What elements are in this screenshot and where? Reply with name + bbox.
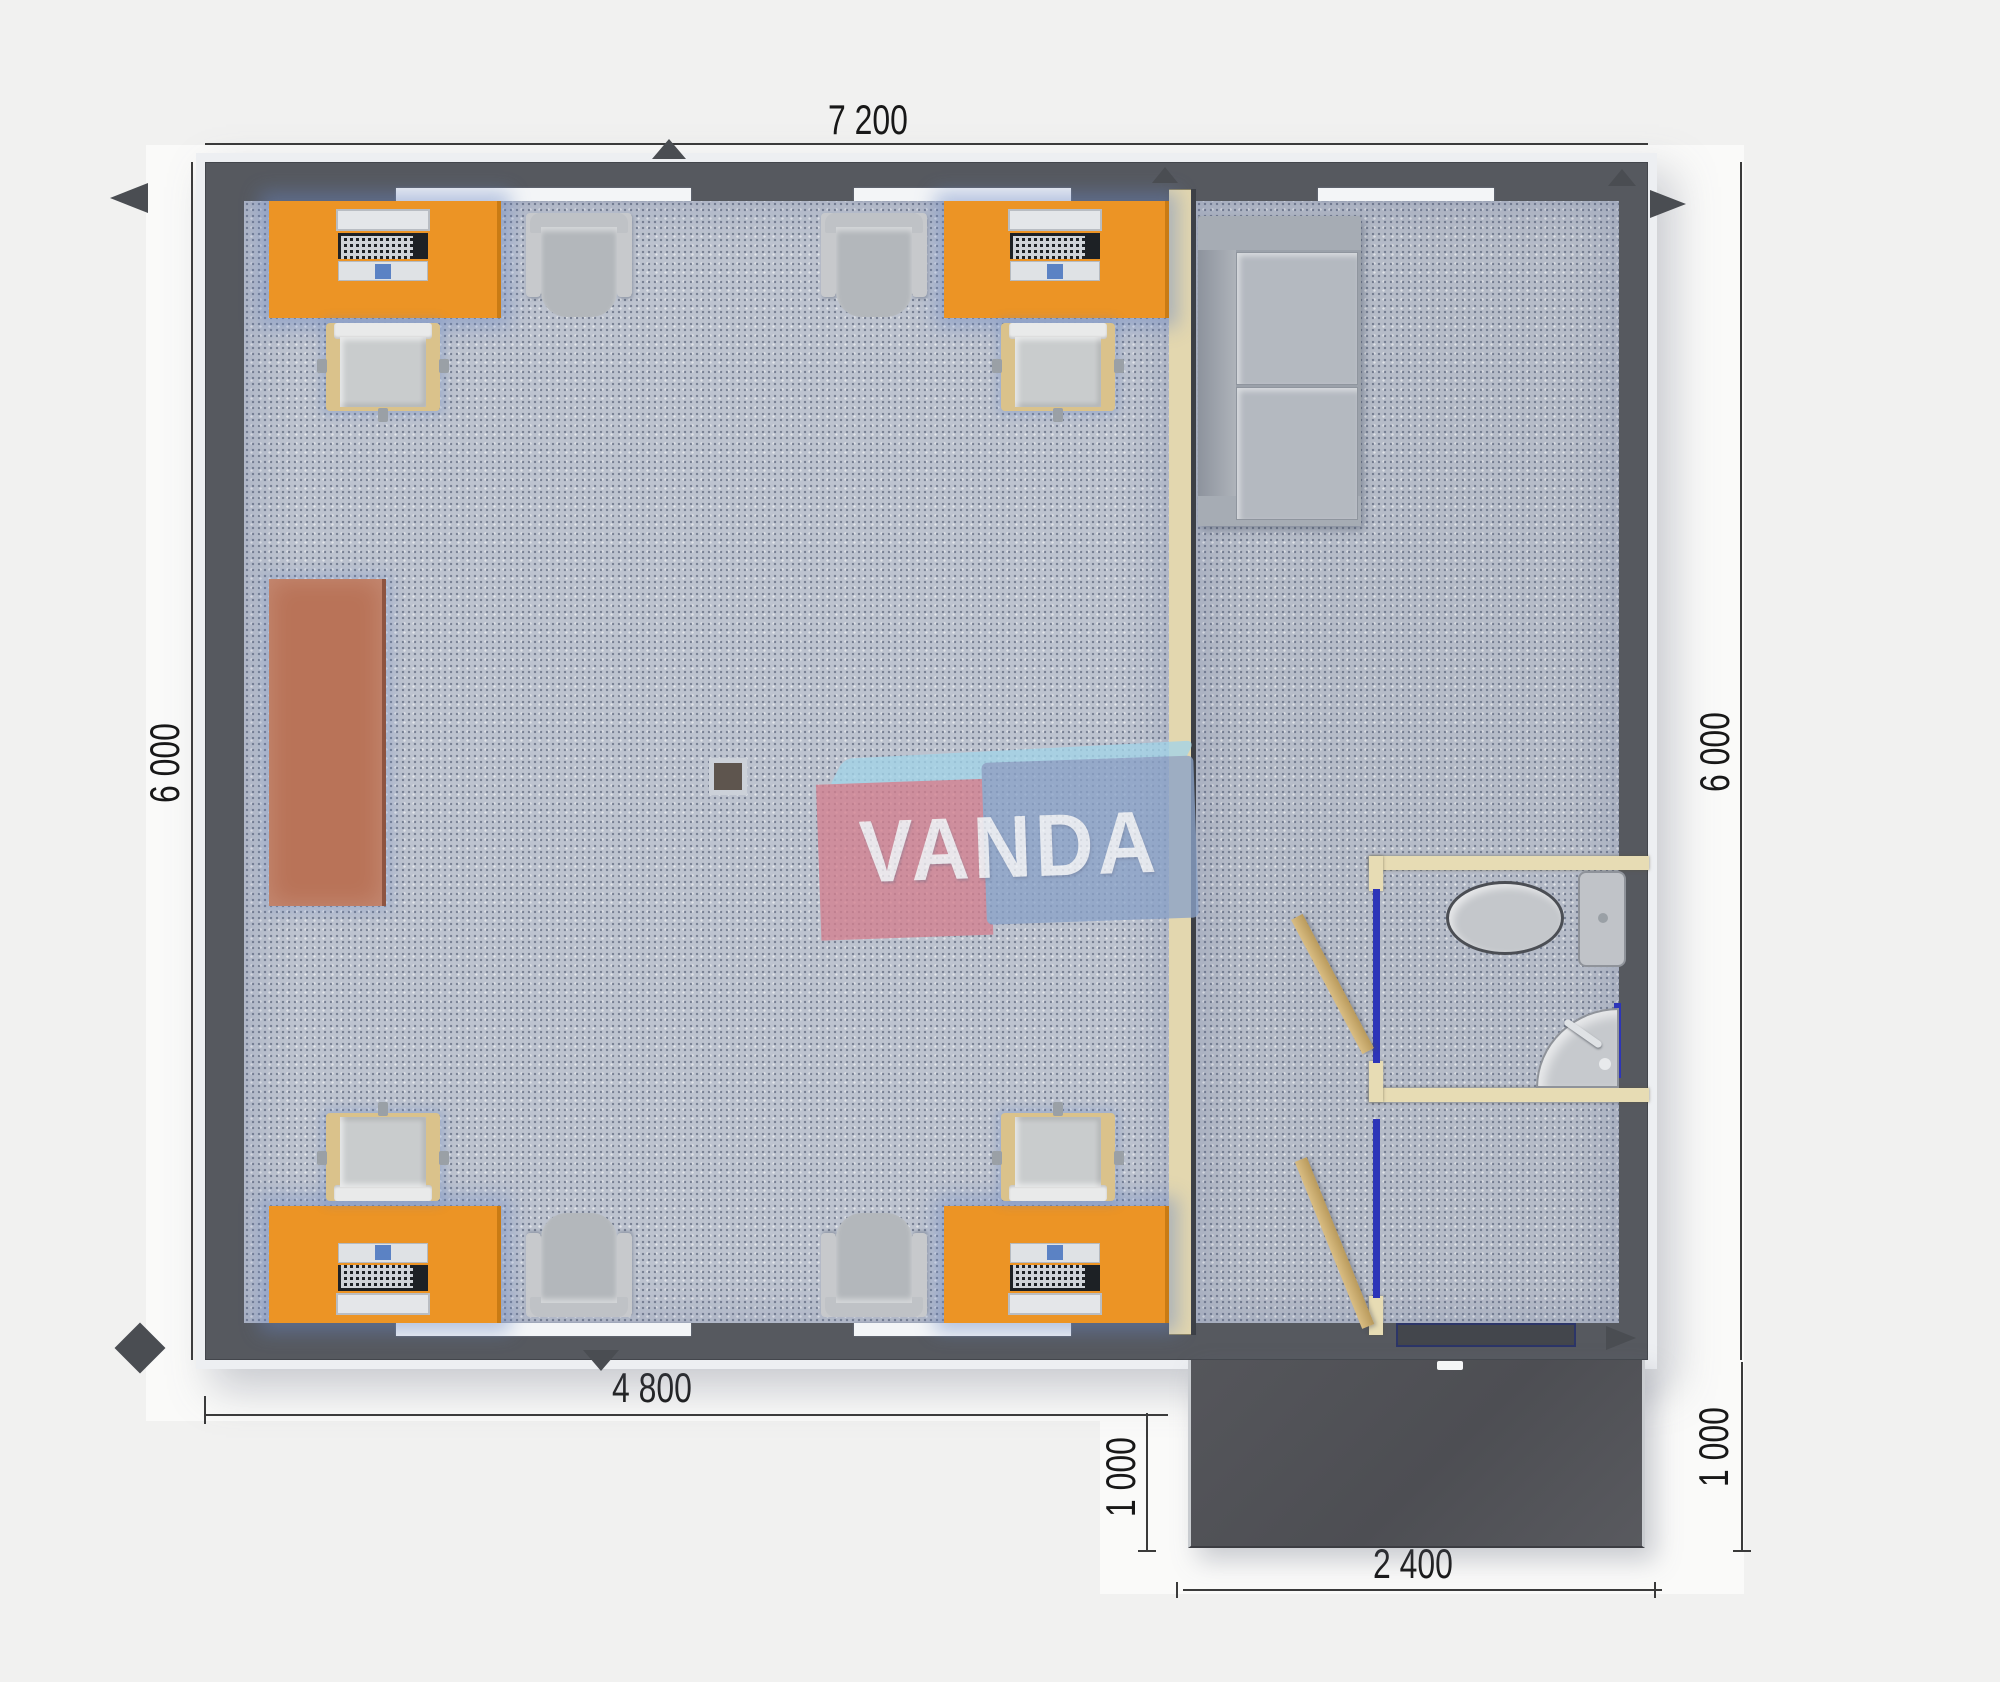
dimension-tick <box>1138 1550 1156 1552</box>
caster <box>439 1151 449 1165</box>
sofa <box>1198 216 1361 526</box>
ridge-marker-top-icon <box>652 139 686 159</box>
caster <box>378 1102 388 1116</box>
caster <box>317 359 327 373</box>
keyboard-icon <box>1010 233 1100 259</box>
dimension-label-left: 6 000 <box>141 723 189 803</box>
ridge-marker-top-icon <box>1152 167 1178 183</box>
computer-icon <box>336 209 430 281</box>
keyboard-icon <box>338 233 428 259</box>
storage-cabinet <box>269 579 386 906</box>
computer-icon <box>1008 209 1102 281</box>
tray <box>1010 1243 1100 1263</box>
toilet-flush-button <box>1598 913 1608 923</box>
floor-plan-scene: 7 200 6 000 6 000 4 800 1 000 1 000 2 40… <box>0 0 2000 1682</box>
computer-icon <box>1008 1243 1102 1315</box>
desk-chair <box>1001 323 1115 411</box>
key <box>1047 264 1063 279</box>
sofa-cushion <box>1236 252 1358 385</box>
office-desk <box>944 201 1169 318</box>
caster <box>1114 1151 1124 1165</box>
door-frame-blue <box>1373 889 1380 1063</box>
tray <box>1010 261 1100 281</box>
desk-chair <box>326 1113 440 1201</box>
floor-column <box>709 758 747 795</box>
faucet-knob <box>1599 1058 1611 1070</box>
dimension-line-right <box>1740 162 1742 1360</box>
visitor-armchair <box>821 213 927 321</box>
chair-seat <box>1015 337 1101 407</box>
entrance-porch <box>1188 1360 1645 1548</box>
dimension-line-porch-right <box>1741 1362 1743 1552</box>
dimension-label-right: 6 000 <box>1691 712 1739 792</box>
dimension-label-porch-depth-left: 1 000 <box>1097 1437 1145 1517</box>
window-top-1 <box>396 188 691 201</box>
visitor-armchair <box>526 213 632 321</box>
ridge-marker-right-icon <box>1650 190 1686 218</box>
chair-back <box>1009 1185 1107 1201</box>
bathroom-wall-south <box>1369 1088 1649 1102</box>
dimension-line-bottom-office <box>205 1414 1168 1416</box>
window-bottom-1 <box>396 1323 691 1336</box>
visitor-armchair <box>526 1209 632 1317</box>
chair-seat <box>1015 1117 1101 1187</box>
visitor-armchair <box>821 1209 927 1317</box>
ridge-marker-left-icon <box>110 183 148 213</box>
computer-icon <box>336 1243 430 1315</box>
office-desk <box>944 1206 1169 1323</box>
door-handle <box>1437 1361 1463 1370</box>
sofa-backrest <box>1198 216 1236 526</box>
tray <box>338 1243 428 1263</box>
sofa-armrest <box>1198 216 1361 250</box>
chair-seat <box>340 337 426 407</box>
door-frame-blue <box>1373 1119 1380 1298</box>
window-bottom-2 <box>854 1323 1071 1336</box>
dimension-line-top <box>205 143 1648 145</box>
caster <box>317 1151 327 1165</box>
caster <box>1114 359 1124 373</box>
keyboard-icon <box>338 1265 428 1291</box>
dimension-line-porch-bottom <box>1183 1589 1662 1591</box>
caster <box>992 359 1002 373</box>
corner-sink <box>1536 1008 1619 1088</box>
desk-chair <box>1001 1113 1115 1201</box>
dimension-line-porch-left <box>1146 1413 1148 1552</box>
dimension-label-top: 7 200 <box>828 96 908 144</box>
caster <box>378 408 388 422</box>
ridge-marker-bottom-icon <box>583 1350 619 1371</box>
chair-back <box>334 1185 432 1201</box>
keyboard-icon <box>1010 1265 1100 1291</box>
caster <box>992 1151 1002 1165</box>
caster <box>439 359 449 373</box>
monitor-icon <box>336 209 430 231</box>
bathroom-wall-west <box>1369 1061 1383 1102</box>
armchair-cushion <box>541 1213 617 1303</box>
key <box>375 264 391 279</box>
watermark-logo: VANDA <box>815 735 1204 942</box>
office-desk <box>269 1206 501 1323</box>
ridge-marker-top-icon <box>1608 169 1636 186</box>
key <box>1047 1245 1063 1260</box>
toilet-bowl <box>1446 881 1564 955</box>
window-top-3 <box>1318 188 1494 201</box>
monitor-icon <box>1008 209 1102 231</box>
key <box>375 1245 391 1260</box>
bathroom-wall-north <box>1369 856 1649 870</box>
monitor-icon <box>1008 1293 1102 1315</box>
sink-basin <box>1536 1008 1619 1088</box>
dimension-tick <box>1654 1582 1656 1598</box>
dimension-label-office-width: 4 800 <box>612 1364 692 1412</box>
toilet <box>1446 871 1626 967</box>
entrance-door <box>1396 1323 1576 1347</box>
bathroom-wall-west <box>1369 856 1383 891</box>
ridge-marker-right-icon <box>1606 1326 1636 1350</box>
armchair-cushion <box>836 1213 912 1303</box>
caster <box>1053 408 1063 422</box>
desk-chair <box>326 323 440 411</box>
armchair-cushion <box>541 227 617 317</box>
window-top-2 <box>854 188 1071 201</box>
chair-seat <box>340 1117 426 1187</box>
armchair-cushion <box>836 227 912 317</box>
tray <box>338 261 428 281</box>
dimension-line-left <box>191 162 193 1360</box>
logo-text: VANDA <box>832 790 1187 904</box>
office-desk <box>269 201 501 318</box>
dimension-tick <box>1176 1582 1178 1598</box>
caster <box>1053 1102 1063 1116</box>
dimension-tick <box>1733 1550 1751 1552</box>
dimension-label-porch-depth-right: 1 000 <box>1690 1407 1738 1487</box>
sofa-cushion <box>1236 387 1358 520</box>
dimension-tick <box>204 1396 206 1424</box>
monitor-icon <box>336 1293 430 1315</box>
